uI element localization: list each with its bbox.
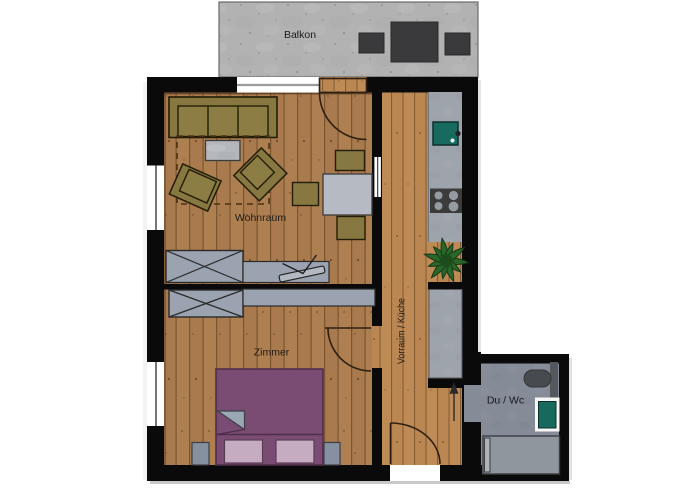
- svg-text:Vorraum / Küche: Vorraum / Küche: [396, 298, 408, 364]
- svg-text:Balkon: Balkon: [284, 29, 316, 41]
- svg-text:Du / Wc: Du / Wc: [487, 395, 524, 407]
- svg-text:Wohnraum: Wohnraum: [235, 212, 286, 224]
- svg-text:Zimmer: Zimmer: [254, 347, 290, 359]
